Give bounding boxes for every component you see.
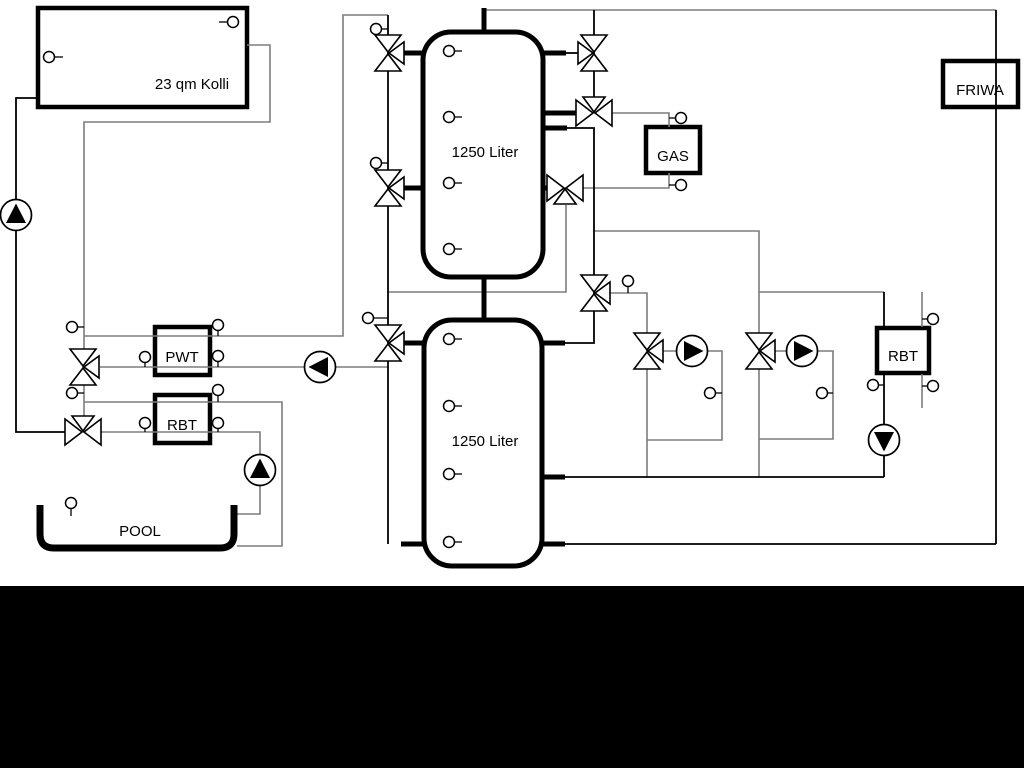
- temp-sensor-rbt-left-in: [140, 418, 151, 433]
- temp-sensor-mixer-out: [623, 276, 634, 294]
- valve-branch2-mixer: [746, 333, 775, 369]
- temp-sensor-gas-bottom: [669, 180, 687, 191]
- temp-sensor-pwt-riser: [67, 322, 85, 333]
- temp-sensor-pwt-out-top: [213, 320, 224, 337]
- temp-sensor-column-bottom: [363, 313, 389, 324]
- pwt-label: PWT: [165, 349, 198, 366]
- valve-tank1-left-top: [375, 35, 404, 71]
- collector-label: 23 qm Kolli: [155, 76, 229, 93]
- temp-sensor-rbt-right-out: [868, 380, 885, 391]
- rbt-right-label: RBT: [888, 348, 918, 365]
- valve-tank1-left-bottom: [375, 170, 404, 206]
- pump-branch1: [677, 336, 708, 367]
- temp-sensor-branch1-return: [705, 388, 723, 399]
- valve-gas-return: [547, 175, 583, 204]
- temp-sensor-rbt-riser: [67, 388, 85, 399]
- pump-pwt: [305, 352, 336, 383]
- valve-tank1-right-top: [578, 35, 607, 71]
- temp-sensor-branch2-return: [817, 388, 834, 399]
- pool-label: POOL: [119, 523, 161, 540]
- temp-sensor-rbt-left-out-bottom: [213, 418, 224, 433]
- temp-sensor-column-top: [371, 24, 389, 35]
- hydraulic-schematic: 23 qm Kolli 1250 Liter 1250 Liter PWT RB…: [0, 0, 1024, 768]
- pipe-solar-supply: [16, 98, 67, 432]
- temp-sensor-rbt-left-out-top: [213, 385, 224, 403]
- tank1-label: 1250 Liter: [452, 144, 519, 161]
- temp-sensor-pwt-in: [140, 352, 151, 368]
- pump-branch2: [787, 336, 818, 367]
- pump-solar: [1, 200, 32, 231]
- valve-heating-mixer: [581, 275, 610, 311]
- valve-pwt-inlet: [70, 349, 99, 385]
- valve-branch1-mixer: [634, 333, 663, 369]
- valve-gas-supply: [576, 97, 612, 126]
- temp-sensor-rbt-right-sec-top: [922, 314, 939, 325]
- pipe-tank1-to-mixing-valve: [567, 128, 594, 293]
- tank2-label: 1250 Liter: [452, 433, 519, 450]
- pump-pool: [245, 455, 276, 486]
- valve-tank2-left: [375, 325, 404, 361]
- temp-sensor-column-mid: [371, 158, 389, 169]
- footer-black-bar: [0, 586, 1024, 768]
- gas-label: GAS: [657, 148, 689, 165]
- temp-sensor-pool: [66, 498, 77, 517]
- pump-rbt-right: [869, 425, 900, 456]
- temp-sensor-pwt-out-mid: [213, 351, 224, 368]
- temp-sensor-rbt-right-sec-bottom: [922, 381, 939, 392]
- rbt-left-label: RBT: [167, 417, 197, 434]
- pipe-branch1-supply: [610, 293, 647, 477]
- temp-sensor-gas-top: [669, 113, 687, 124]
- valve-rbt-left-inlet: [65, 416, 101, 445]
- friwa-label: FRIWA: [956, 82, 1004, 99]
